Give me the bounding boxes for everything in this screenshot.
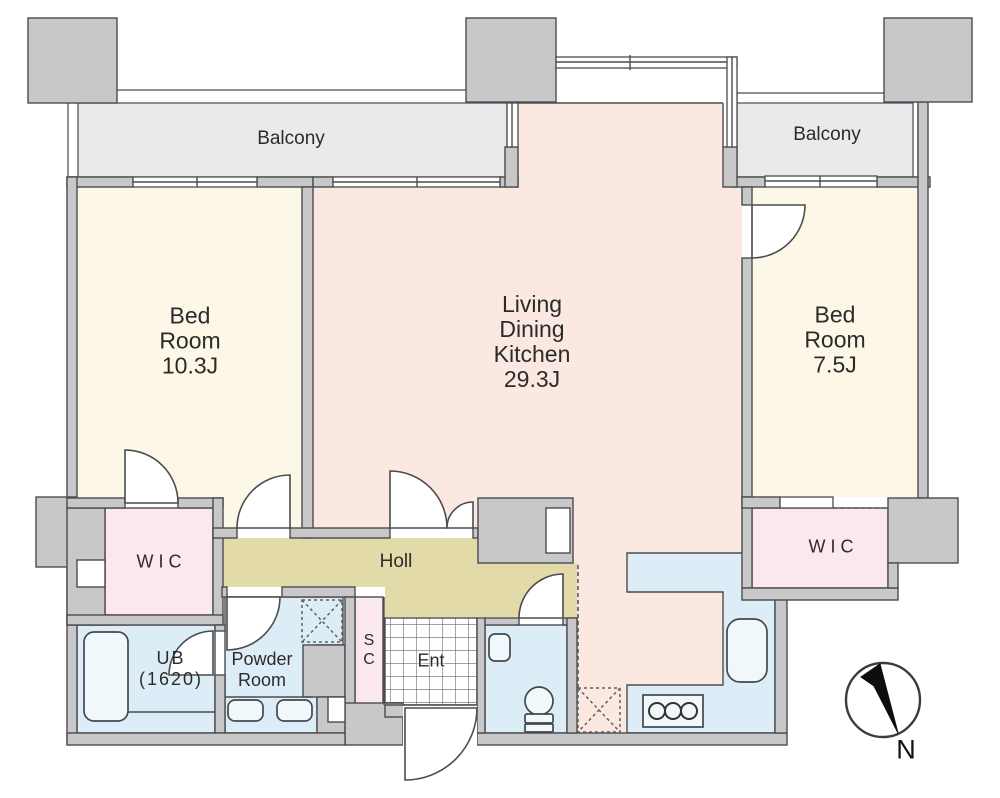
pillar-right xyxy=(884,18,972,102)
compass xyxy=(846,663,920,737)
sink-powder-2 xyxy=(277,700,312,721)
kitchen-sink xyxy=(727,619,767,682)
balcony-left-floor xyxy=(78,103,507,177)
toilet-bowl xyxy=(525,687,553,715)
room-wic-right xyxy=(752,508,888,588)
room-entrance-grid xyxy=(385,618,477,705)
sink-powder-1 xyxy=(228,700,263,721)
toilet-tank-2 xyxy=(525,724,553,732)
balcony-right-floor xyxy=(737,103,913,177)
wall-niche-powder xyxy=(328,697,345,722)
wall-niche-left xyxy=(77,560,105,587)
pillar-center xyxy=(466,18,556,102)
pipe-space xyxy=(546,508,570,553)
toilet-tank-1 xyxy=(525,714,553,723)
room-bedroom-left xyxy=(77,187,302,528)
opening-wic-right xyxy=(780,497,833,508)
bathtub xyxy=(84,632,128,721)
room-wic-left xyxy=(105,508,213,615)
room-shoe-closet xyxy=(355,597,383,705)
balconies xyxy=(68,90,918,177)
floorplan-drawing xyxy=(0,0,1000,798)
stove xyxy=(643,695,703,727)
floorplan-page: Balcony Balcony Bed Room 10.3J Living Di… xyxy=(0,0,1000,798)
door-entrance xyxy=(405,708,477,780)
pillar-left xyxy=(28,18,117,103)
toilet-sink xyxy=(489,634,510,661)
